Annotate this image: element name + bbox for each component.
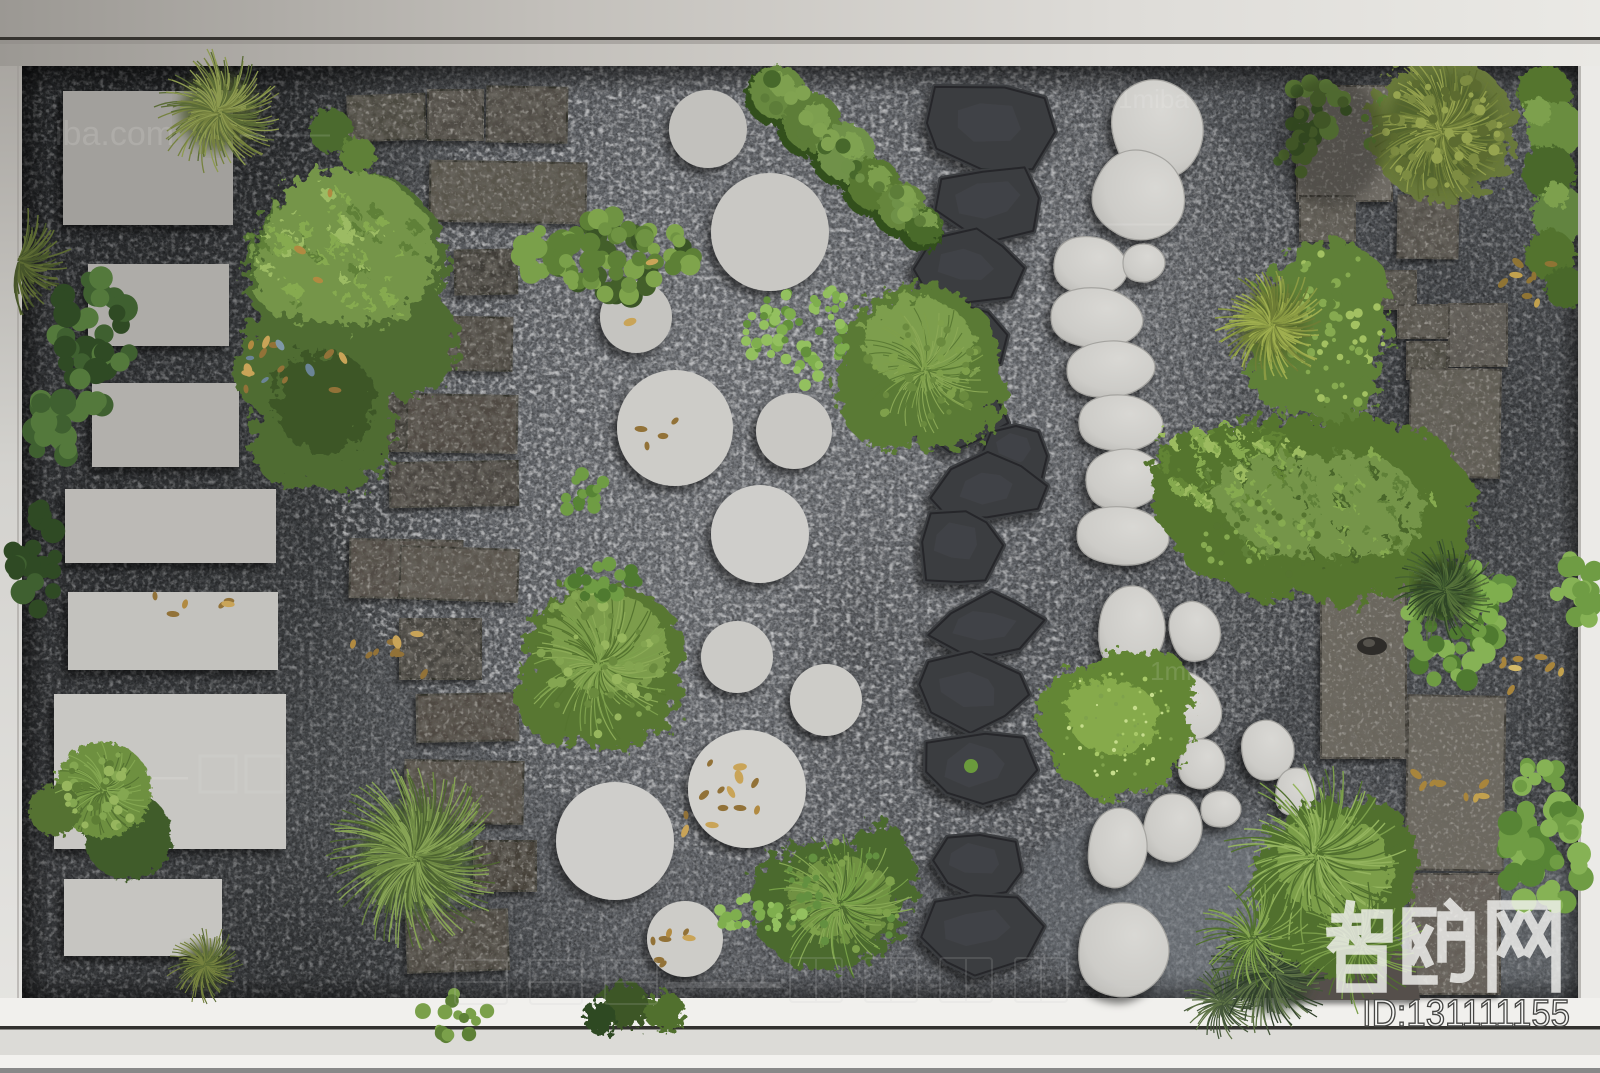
svg-text:—: —	[150, 755, 188, 797]
svg-text:———: ———	[240, 117, 330, 150]
svg-text:iba.com: iba.com	[55, 115, 174, 153]
svg-text:1miba: 1miba	[1150, 656, 1221, 686]
svg-text:ID:131111155: ID:131111155	[1362, 993, 1570, 1035]
svg-text:1miba: 1miba	[1118, 84, 1189, 114]
svg-text:—————: —————	[1040, 206, 1190, 239]
